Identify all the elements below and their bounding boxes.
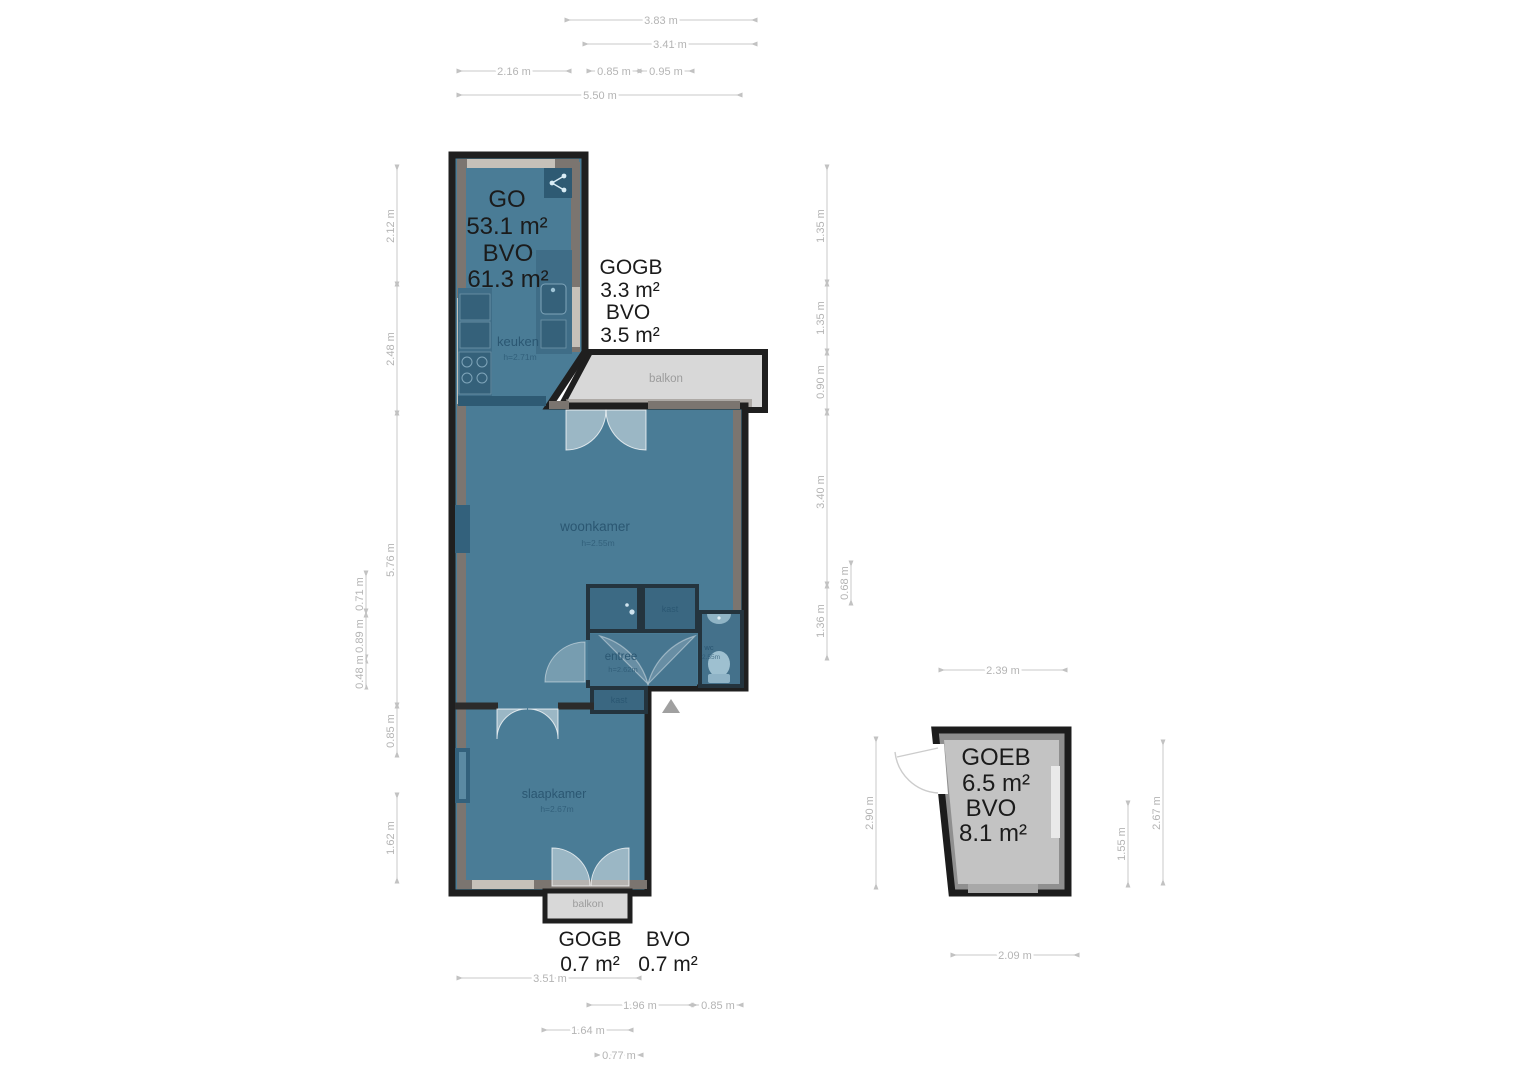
dimension-label: 5.50 m bbox=[583, 90, 617, 102]
dimension-label: 2.12 m bbox=[385, 209, 397, 243]
area-labels-balcony-top: GOGB 3.3 m² BVO 3.5 m² bbox=[599, 256, 662, 347]
door-arc bbox=[895, 752, 938, 793]
room-label-woonkamer: woonkamer bbox=[559, 519, 630, 534]
storage-window bbox=[1051, 766, 1060, 838]
dimension-label: 0.85 m bbox=[385, 714, 397, 748]
dimensions-left: 2.12 m 2.48 m 5.76 m 0.85 m 1.62 m 0.71 … bbox=[354, 170, 397, 878]
room-label-keuken: keuken bbox=[497, 334, 539, 349]
dimension-label: 2.09 m bbox=[998, 950, 1032, 962]
area-storage-bvo-value: 8.1 m² bbox=[959, 820, 1027, 847]
area-storage-goeb-value: 6.5 m² bbox=[962, 770, 1030, 797]
dimension-label: 0.71 m bbox=[354, 577, 366, 611]
dimension-label: 1.64 m bbox=[571, 1025, 605, 1037]
dimension-label: 1.55 m bbox=[1116, 827, 1128, 861]
boiler-icon bbox=[544, 168, 572, 198]
window-sill bbox=[455, 505, 470, 553]
dimension-label: 1.96 m bbox=[623, 1000, 657, 1012]
dimension-label: 1.35 m bbox=[815, 209, 827, 243]
dimension-label: 1.62 m bbox=[385, 821, 397, 855]
dimension-label: 0.48 m bbox=[354, 655, 366, 689]
area-labels-balcony-bottom: GOGB 0.7 m² BVO 0.7 m² bbox=[558, 928, 697, 976]
dimension-label: 0.90 m bbox=[815, 365, 827, 399]
area-balcony-top-gogb-label: GOGB bbox=[599, 256, 662, 279]
area-storage-goeb-label: GOEB bbox=[961, 744, 1030, 771]
area-main-bvo-value: 61.3 m² bbox=[467, 266, 548, 293]
room-height-keuken: h=2.71m bbox=[503, 352, 536, 362]
room-label-slaapkamer: slaapkamer bbox=[522, 787, 587, 801]
dimension-label: 2.48 m bbox=[385, 332, 397, 366]
dimension-label: 0.85 m bbox=[701, 1000, 735, 1012]
dimensions-top: 3.83 m 3.41 m 2.16 m 0.85 m 0.95 m 5.50 … bbox=[462, 15, 752, 102]
balcony-bottom-label: balkon bbox=[573, 898, 604, 910]
dimension-label: 1.35 m bbox=[815, 301, 827, 335]
dimension-label: 2.16 m bbox=[497, 66, 531, 78]
dimension-label: 3.83 m bbox=[644, 15, 678, 27]
dimension-label: 2.39 m bbox=[986, 665, 1020, 677]
dimension-label: 0.95 m bbox=[649, 66, 683, 78]
meter-cupboard bbox=[588, 586, 639, 631]
area-labels-storage: GOEB 6.5 m² BVO 8.1 m² bbox=[959, 744, 1031, 847]
area-balcony-bottom-gogb-label: GOGB bbox=[558, 928, 621, 951]
area-balcony-bottom-bvo-value: 0.7 m² bbox=[638, 953, 698, 976]
room-label-entree: entree bbox=[605, 651, 638, 663]
area-main-go-value: 53.1 m² bbox=[466, 213, 547, 240]
dimensions-right: 1.35 m 1.35 m 0.90 m 3.40 m 1.36 m 0.68 … bbox=[815, 170, 851, 655]
dimension-label: 2.90 m bbox=[864, 796, 876, 830]
room-height-woonkamer: h=2.55m bbox=[581, 538, 614, 548]
balcony-top-label: balkon bbox=[649, 373, 683, 385]
entrance-arrow-icon bbox=[662, 699, 680, 713]
area-balcony-top-bvo-label: BVO bbox=[606, 301, 650, 324]
dimension-label: 0.89 m bbox=[354, 619, 366, 653]
floorplan-canvas: 3.83 m 3.41 m 2.16 m 0.85 m 0.95 m 5.50 … bbox=[0, 0, 1527, 1080]
balcony-bottom: balkon bbox=[545, 891, 630, 921]
door-leaf bbox=[897, 748, 938, 757]
room-label-wc: wc bbox=[703, 643, 713, 652]
area-main-bvo-label: BVO bbox=[483, 240, 534, 267]
stove-icon bbox=[459, 352, 491, 394]
area-balcony-top-bvo-value: 3.5 m² bbox=[600, 324, 660, 347]
dimension-label: 5.76 m bbox=[385, 543, 397, 577]
area-main-go-label: GO bbox=[488, 186, 525, 213]
dimension-label: 1.36 m bbox=[815, 604, 827, 638]
room-label-kast-upper: kast bbox=[662, 604, 679, 614]
dimension-label: 0.68 m bbox=[839, 566, 851, 600]
dimension-label: 2.67 m bbox=[1151, 796, 1163, 830]
room-height-slaapkamer: h=2.67m bbox=[540, 804, 573, 814]
room-height-wc: 2.55m bbox=[702, 654, 720, 661]
area-balcony-bottom-bvo-label: BVO bbox=[646, 928, 690, 951]
dimension-label: 3.41 m bbox=[653, 39, 687, 51]
room-label-kast-lower: kast bbox=[611, 695, 628, 705]
dimension-label: 0.77 m bbox=[602, 1050, 636, 1062]
dimensions-bottom: 3.51 m 1.96 m 0.85 m 1.64 m 0.77 m bbox=[462, 973, 738, 1062]
room-height-entree: h=2.62m bbox=[608, 665, 637, 674]
area-storage-bvo-label: BVO bbox=[966, 795, 1017, 822]
dimension-label: 3.40 m bbox=[815, 475, 827, 509]
dimension-label: 0.85 m bbox=[597, 66, 631, 78]
area-balcony-top-gogb-value: 3.3 m² bbox=[600, 279, 660, 302]
area-balcony-bottom-gogb-value: 0.7 m² bbox=[560, 953, 620, 976]
